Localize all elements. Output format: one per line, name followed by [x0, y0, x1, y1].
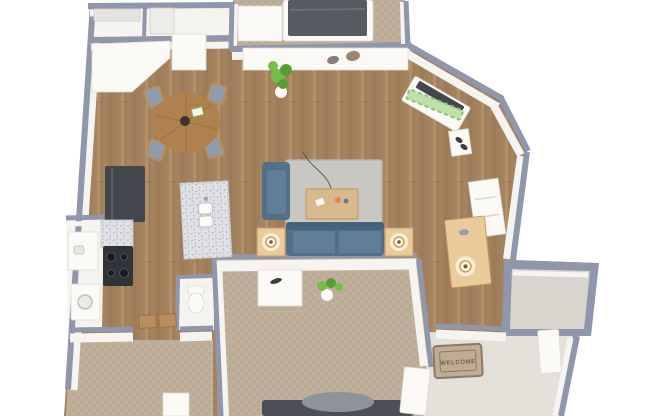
- floorplan-svg: WELCOME: [0, 0, 652, 416]
- burner-2: [121, 254, 128, 261]
- wall-bed-left: [231, 2, 232, 49]
- entry-door: [538, 329, 562, 373]
- welcome-mat: WELCOME: [433, 344, 483, 378]
- master-bed-pillow: [302, 392, 374, 412]
- balcony-inner-face: [513, 273, 588, 275]
- plant-leaves-3: [268, 61, 278, 71]
- wall-entry: [435, 326, 507, 329]
- entry-shoes: [448, 129, 471, 157]
- armchair: [262, 162, 290, 220]
- bed-top-fold: [290, 9, 365, 10]
- toilet: [188, 286, 204, 313]
- wall-top: [88, 5, 233, 6]
- plant-master-leaves-2: [326, 278, 336, 288]
- master-nightstand: [258, 270, 302, 306]
- end-table-right: [385, 228, 413, 256]
- wall-bed-right: [406, 1, 408, 46]
- plant-leaves-4: [278, 79, 288, 89]
- lamp-core-left: [269, 240, 273, 244]
- end-table-left: [257, 228, 285, 256]
- washer: [71, 284, 100, 320]
- balcony-floor: [510, 269, 590, 329]
- plant-master-leaves-1: [317, 281, 327, 291]
- coffee-table: [306, 189, 358, 219]
- wall-master-top-face: [215, 264, 416, 266]
- dining-centerpiece: [180, 116, 190, 126]
- plant-master-leaves-3: [335, 283, 343, 291]
- wall-entry-face: [436, 334, 506, 337]
- wall-bed-left-face: [235, 4, 236, 46]
- coffee-table-bowl: [335, 197, 341, 203]
- toilet-bowl: [188, 293, 204, 313]
- wall-bed2-top-face-a: [70, 337, 133, 338]
- sofa: [286, 222, 384, 256]
- sink-basin-2: [199, 216, 214, 228]
- sofa-cushion-right: [339, 231, 381, 253]
- media-console: [243, 48, 408, 70]
- bed-top-blanket: [288, 0, 367, 36]
- wall-bath-left-top: [66, 217, 104, 218]
- sink-basin-1: [198, 203, 213, 215]
- hall-console-table: [445, 216, 492, 288]
- closet-shelf-a: [94, 9, 140, 21]
- sofa-back: [286, 222, 384, 230]
- wall-bed-right-face: [402, 2, 403, 44]
- balcony: [502, 260, 599, 336]
- plant-leaves-2: [280, 64, 292, 76]
- washer-door: [78, 295, 92, 309]
- dining-set: [143, 83, 227, 161]
- wall-closet-divider: [144, 4, 145, 38]
- top-bedroom-dresser: [238, 6, 282, 41]
- kitchen-upper-cabinet-right: [172, 34, 206, 70]
- wall-bed2-top-face-b: [180, 336, 212, 337]
- master-door: [400, 367, 431, 415]
- counter-peninsula: [180, 181, 232, 259]
- vanity-sink: [74, 246, 84, 254]
- second-bedroom: [163, 393, 189, 416]
- door-mat-2: [159, 314, 177, 328]
- wall-bath-left-top-face: [68, 223, 103, 224]
- wall-bed2-top-b: [180, 328, 213, 329]
- lamp-core-right: [397, 240, 401, 244]
- sofa-cushion-left: [293, 231, 335, 253]
- wall-bath-right-side: [177, 277, 178, 330]
- second-bedroom-carpet: [66, 340, 213, 416]
- wall-closet-bottom: [90, 38, 232, 40]
- door-mat-1: [139, 315, 157, 329]
- wall-bath-right-top: [177, 276, 214, 277]
- wall-bed2-top-a: [69, 329, 133, 330]
- burner-4: [120, 269, 129, 278]
- counter-left: [101, 220, 133, 248]
- coffee-table-cup: [344, 199, 349, 204]
- stove: [103, 246, 133, 286]
- closet-shelf-b: [150, 8, 174, 34]
- bed2-dresser: [163, 393, 189, 416]
- armchair-seat: [267, 170, 286, 214]
- floorplan-image: WELCOME: [0, 0, 652, 416]
- burner-1: [107, 253, 116, 262]
- burner-3: [108, 270, 115, 277]
